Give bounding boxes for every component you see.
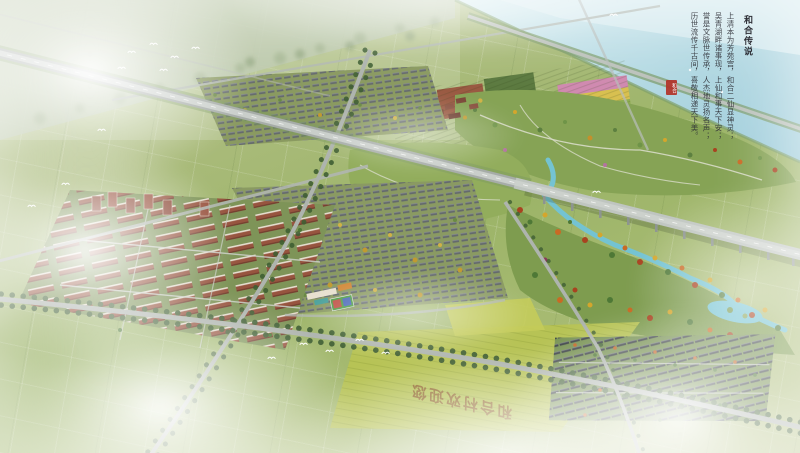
egret-icon (28, 205, 35, 206)
calligraphy-title: 和合传说 (741, 15, 754, 146)
egret-icon (268, 357, 275, 358)
egret-icon (300, 343, 307, 344)
egret-icon (326, 350, 333, 351)
aerial-masterplan-rendering: 和合村欢迎您 (0, 0, 800, 453)
landscape-artwork: 和合村欢迎您 (0, 0, 800, 453)
calligraphy-line: 历世流传千古间，喜敬相递天下美。 (688, 12, 700, 146)
calligraphy-inscription: 和合传说 上清本为芳苑宫，和合二仙显神灵； 吴青湖畔诸事现，上仙和事天下安； 誉… (688, 12, 754, 146)
calligraphy-line: 誉是文脉世传承，人杰地灵扬名声； (700, 12, 712, 146)
calligraphy-line: 上清本为芳苑宫，和合二仙显神灵； (724, 12, 736, 146)
egret-icon (62, 183, 69, 184)
calligraphy-line: 吴青湖畔诸事现，上仙和事天下安； (712, 12, 724, 146)
artist-seal-icon: 和合 (666, 80, 677, 95)
